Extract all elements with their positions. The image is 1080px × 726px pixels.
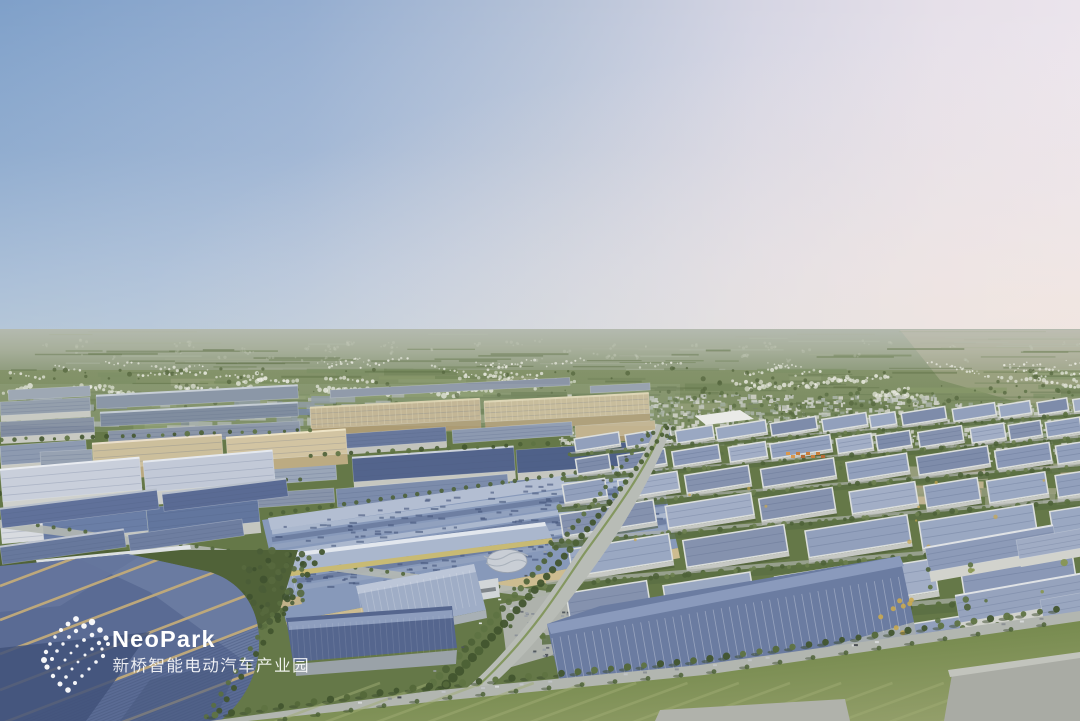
- svg-text:NeoPark: NeoPark: [112, 626, 216, 652]
